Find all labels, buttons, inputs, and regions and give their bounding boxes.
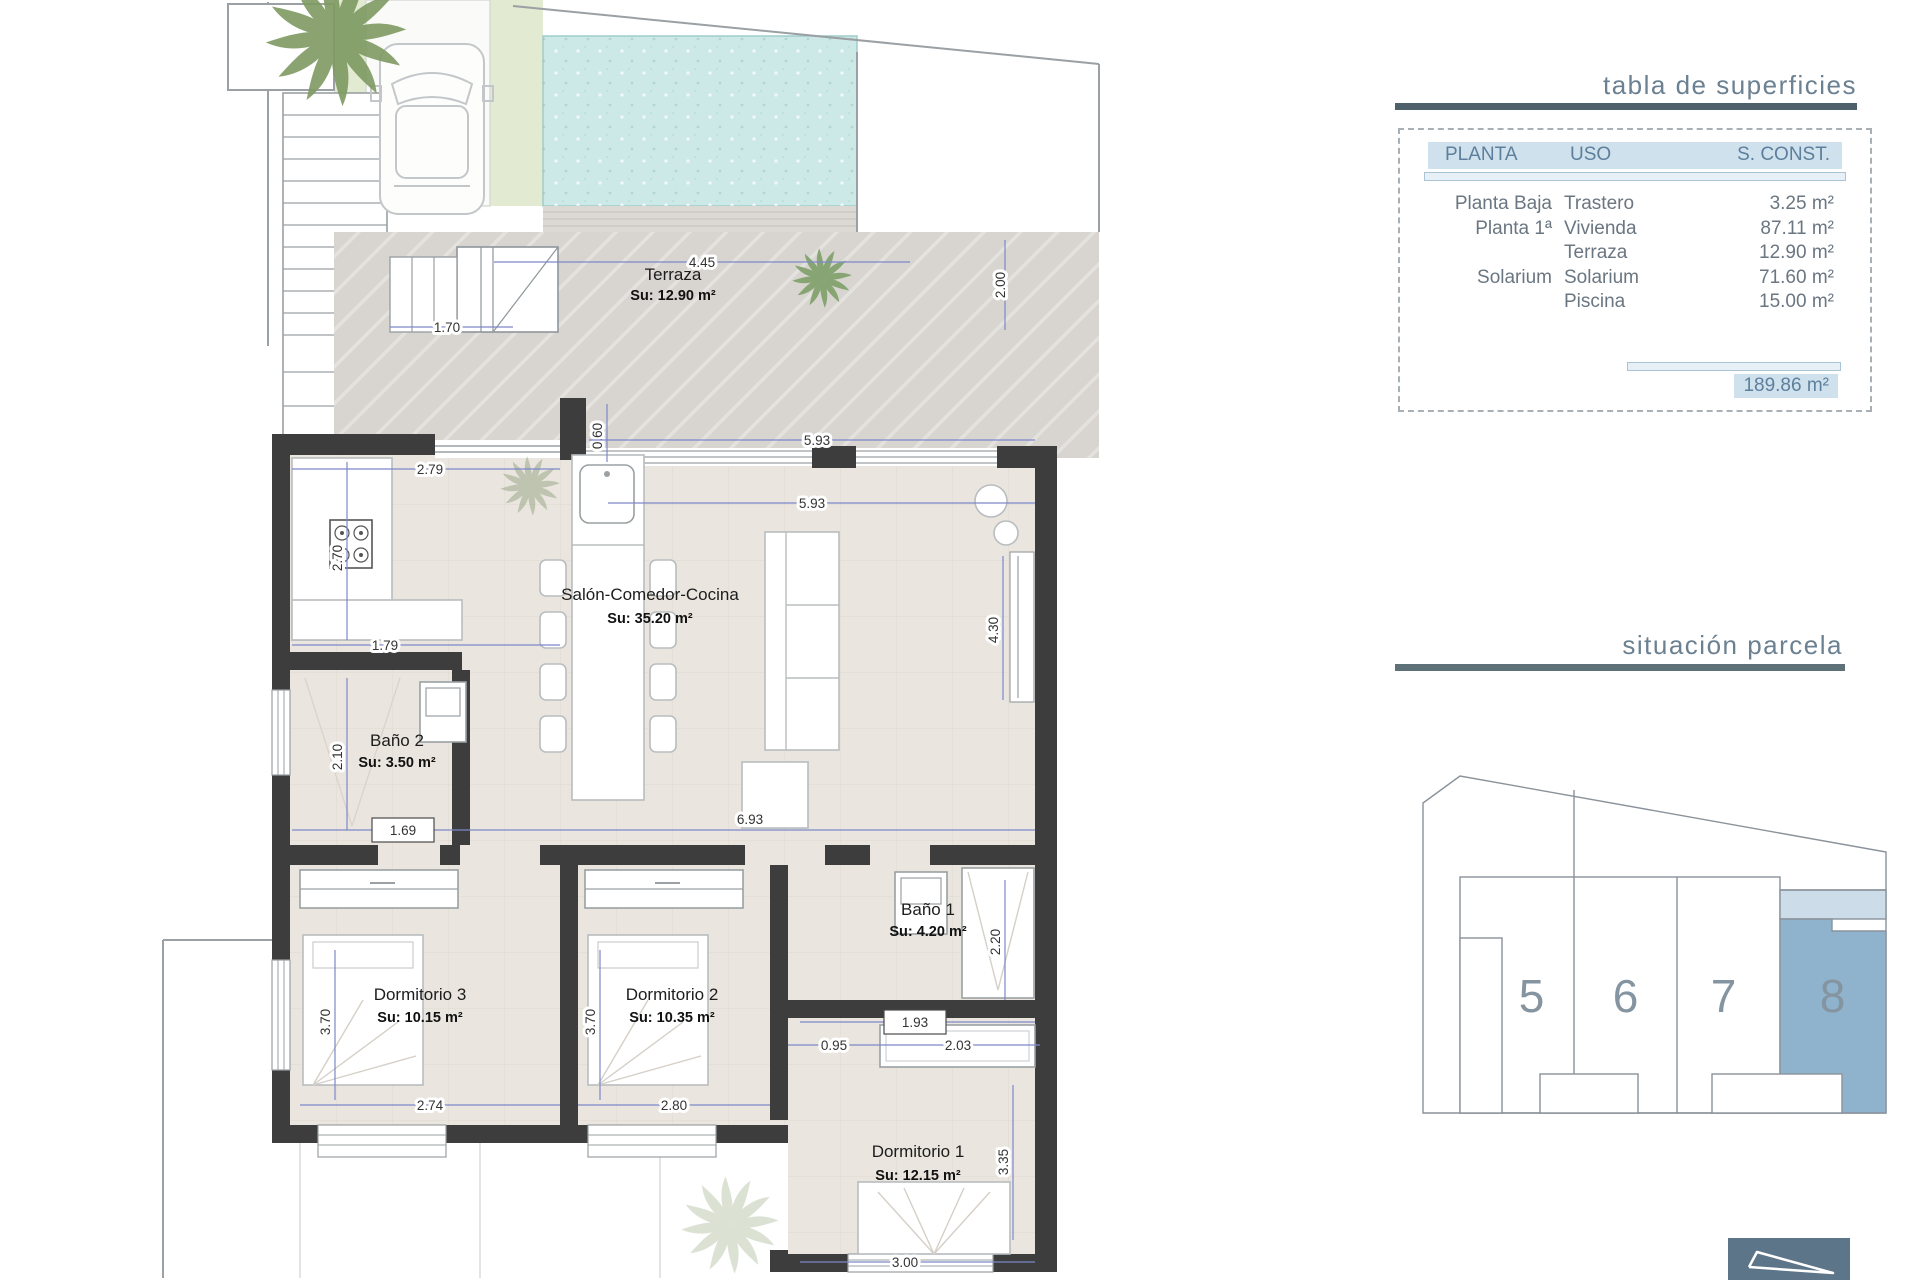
car bbox=[371, 44, 493, 214]
unit-7: 7 bbox=[1711, 970, 1738, 1022]
svg-text:0.95: 0.95 bbox=[821, 1038, 847, 1053]
table-row: Piscina 15.00 m² bbox=[1400, 290, 1870, 315]
svg-text:5.93: 5.93 bbox=[804, 433, 830, 448]
terraza bbox=[334, 232, 1099, 458]
bed-dorm1 bbox=[858, 1182, 1010, 1254]
pool bbox=[543, 36, 857, 206]
surfaces-table-header: PLANTA USO S. CONST. bbox=[1428, 142, 1842, 169]
svg-text:Su: 35.20 m²: Su: 35.20 m² bbox=[607, 611, 693, 627]
row-uso: Solarium bbox=[1552, 266, 1722, 291]
salon-side-window bbox=[1010, 552, 1034, 702]
svg-text:1.79: 1.79 bbox=[372, 638, 398, 653]
unit-5: 5 bbox=[1519, 970, 1546, 1022]
unit-6: 6 bbox=[1613, 970, 1640, 1022]
pool-deck bbox=[543, 206, 857, 232]
svg-text:Su: 4.20 m²: Su: 4.20 m² bbox=[889, 924, 967, 940]
col-uso: USO bbox=[1570, 144, 1611, 166]
svg-text:2.20: 2.20 bbox=[988, 929, 1003, 955]
row-sconst: 87.11 m² bbox=[1722, 217, 1870, 242]
svg-text:2.03: 2.03 bbox=[945, 1038, 971, 1053]
svg-text:Su: 12.90 m²: Su: 12.90 m² bbox=[630, 288, 716, 304]
row-planta: Solarium bbox=[1400, 266, 1552, 291]
trastero bbox=[457, 247, 558, 332]
row-planta bbox=[1400, 290, 1552, 315]
row-sconst: 71.60 m² bbox=[1722, 266, 1870, 291]
svg-text:3.70: 3.70 bbox=[583, 1009, 598, 1035]
svg-text:4.30: 4.30 bbox=[986, 617, 1001, 643]
row-uso: Trastero bbox=[1552, 192, 1722, 217]
total-bar bbox=[1627, 362, 1841, 371]
row-uso: Terraza bbox=[1552, 241, 1722, 266]
svg-text:2.74: 2.74 bbox=[417, 1098, 444, 1113]
dorm1-label: Dormitorio 1 bbox=[872, 1142, 965, 1161]
row-planta bbox=[1400, 241, 1552, 266]
terraza-label: Terraza bbox=[645, 265, 702, 284]
svg-text:2.10: 2.10 bbox=[330, 744, 345, 770]
svg-text:2.70: 2.70 bbox=[330, 545, 345, 571]
svg-text:6.93: 6.93 bbox=[737, 812, 763, 827]
surfaces-rows: Planta Baja Trastero 3.25 m² Planta 1ª V… bbox=[1400, 192, 1870, 315]
unit-8: 8 bbox=[1820, 970, 1847, 1022]
floorplan-sheet: 4.45 1.70 2.00 0.60 2.79 5.93 5.93 2.70 … bbox=[0, 0, 1920, 1280]
svg-text:Su: 3.50 m²: Su: 3.50 m² bbox=[358, 755, 436, 771]
svg-text:Su: 10.15 m²: Su: 10.15 m² bbox=[377, 1010, 463, 1026]
surfaces-title-rule bbox=[1395, 103, 1857, 110]
table-row: Planta Baja Trastero 3.25 m² bbox=[1400, 192, 1870, 217]
row-planta: Planta Baja bbox=[1400, 192, 1552, 217]
surfaces-table-title: tabla de superficies bbox=[1603, 70, 1857, 101]
parcela-diagram bbox=[1423, 776, 1886, 1113]
col-planta: PLANTA bbox=[1445, 144, 1518, 166]
row-planta: Planta 1ª bbox=[1400, 217, 1552, 242]
row-uso: Piscina bbox=[1552, 290, 1722, 315]
svg-text:1.70: 1.70 bbox=[434, 320, 460, 335]
svg-text:3.70: 3.70 bbox=[318, 1009, 333, 1035]
col-sconst: S. CONST. bbox=[1737, 144, 1830, 166]
svg-text:Su: 12.15 m²: Su: 12.15 m² bbox=[875, 1168, 961, 1184]
svg-text:3.35: 3.35 bbox=[996, 1149, 1011, 1175]
parcela-title-rule bbox=[1395, 664, 1845, 671]
svg-text:2.00: 2.00 bbox=[993, 272, 1008, 298]
parcela-title: situación parcela bbox=[1622, 630, 1843, 661]
row-sconst: 15.00 m² bbox=[1722, 290, 1870, 315]
svg-text:Su: 10.35 m²: Su: 10.35 m² bbox=[629, 1010, 715, 1026]
row-uso: Vivienda bbox=[1552, 217, 1722, 242]
table-row: Terraza 12.90 m² bbox=[1400, 241, 1870, 266]
surfaces-table: PLANTA USO S. CONST. Planta Baja Traster… bbox=[1398, 128, 1872, 412]
north-arrow-box bbox=[1728, 1238, 1850, 1280]
north-arrow-icon bbox=[1728, 1238, 1850, 1280]
salon-label: Salón-Comedor-Cocina bbox=[561, 585, 739, 604]
bano1-label: Baño 1 bbox=[901, 900, 955, 919]
svg-text:2.80: 2.80 bbox=[661, 1098, 687, 1113]
total-surface: 189.86 m² bbox=[1734, 374, 1838, 398]
svg-text:1.69: 1.69 bbox=[390, 823, 416, 838]
svg-text:5.93: 5.93 bbox=[799, 496, 825, 511]
svg-text:2.79: 2.79 bbox=[417, 462, 443, 477]
row-sconst: 12.90 m² bbox=[1722, 241, 1870, 266]
svg-text:1.93: 1.93 bbox=[902, 1015, 928, 1030]
plant-patio bbox=[681, 1176, 778, 1273]
table-row: Solarium Solarium 71.60 m² bbox=[1400, 266, 1870, 291]
row-sconst: 3.25 m² bbox=[1722, 192, 1870, 217]
table-row: Planta 1ª Vivienda 87.11 m² bbox=[1400, 217, 1870, 242]
dorm3-label: Dormitorio 3 bbox=[374, 985, 467, 1004]
svg-text:3.00: 3.00 bbox=[892, 1255, 918, 1270]
dorm2-label: Dormitorio 2 bbox=[626, 985, 719, 1004]
header-underline-bar bbox=[1424, 172, 1846, 181]
svg-text:0.60: 0.60 bbox=[590, 423, 605, 449]
bano2-label: Baño 2 bbox=[370, 731, 424, 750]
